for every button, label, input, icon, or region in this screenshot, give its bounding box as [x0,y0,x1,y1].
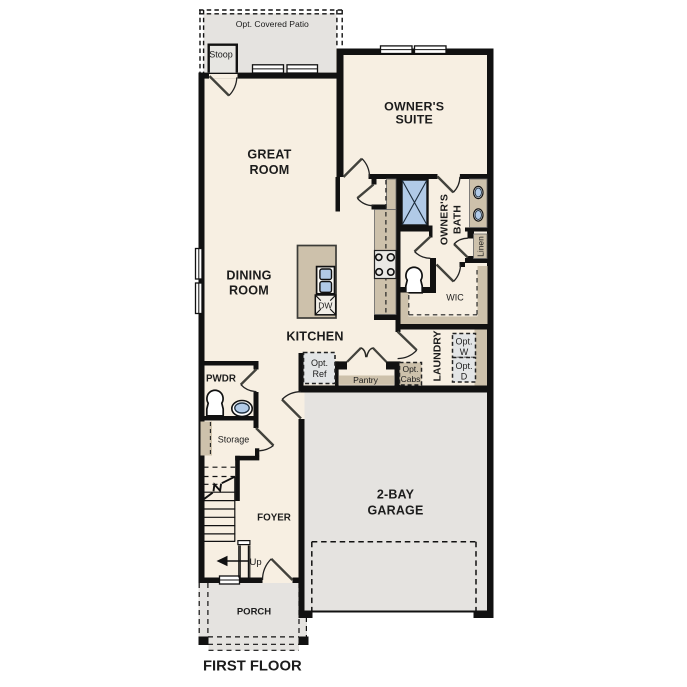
svg-text:W: W [460,347,469,357]
svg-text:Opt.: Opt. [311,358,328,368]
svg-text:PWDR: PWDR [206,374,236,385]
svg-text:ROOM: ROOM [229,284,269,298]
svg-text:DW: DW [318,301,332,311]
svg-text:Cabs: Cabs [401,374,421,384]
svg-text:Ref: Ref [312,369,327,379]
svg-text:Linen: Linen [476,236,486,257]
svg-text:LAUNDRY: LAUNDRY [432,331,444,382]
svg-text:FOYER: FOYER [257,513,291,524]
svg-text:OWNER'S: OWNER'S [439,194,451,245]
svg-text:Storage: Storage [218,435,250,445]
svg-text:GREAT: GREAT [247,147,291,161]
svg-text:KITCHEN: KITCHEN [286,330,343,344]
svg-text:BATH: BATH [452,205,464,234]
svg-text:ROOM: ROOM [250,163,290,177]
svg-text:DINING: DINING [226,268,271,282]
svg-text:Opt.: Opt. [455,361,472,371]
svg-text:GARAGE: GARAGE [367,503,423,517]
svg-text:Opt.: Opt. [402,364,418,374]
svg-text:SUITE: SUITE [395,113,433,127]
svg-text:D: D [461,372,468,382]
svg-text:Stoop: Stoop [209,49,233,59]
svg-text:WIC: WIC [446,292,464,302]
svg-text:PORCH: PORCH [237,607,271,618]
svg-text:2-BAY: 2-BAY [377,487,415,501]
svg-text:FIRST FLOOR: FIRST FLOOR [203,659,302,675]
svg-text:Pantry: Pantry [353,375,379,385]
svg-text:Up: Up [250,557,262,568]
svg-text:Opt. Covered Patio: Opt. Covered Patio [236,19,309,29]
svg-text:Opt.: Opt. [455,337,472,347]
svg-text:OWNER'S: OWNER'S [384,99,444,113]
